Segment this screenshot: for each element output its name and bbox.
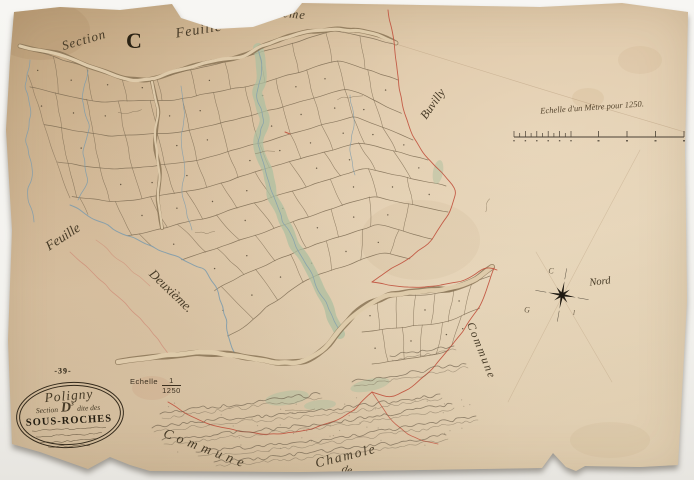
map-sheet: Section C Feuille Deuxième Buvilly Feuil… xyxy=(0,0,694,480)
compass-mark-top: C xyxy=(548,267,553,276)
scale-bar xyxy=(513,131,685,142)
cartouche-section-exponent: 3 xyxy=(71,401,74,407)
compass-mark-left: G xyxy=(524,306,530,315)
west-edge-line xyxy=(28,75,70,198)
label-commune-de: de xyxy=(341,463,354,477)
scale-ratio-label: Echelle xyxy=(130,377,158,386)
label-deuxieme-top: Deuxième xyxy=(247,3,306,23)
scale-fraction-denominator: 1250 xyxy=(162,385,181,395)
sheet-number: 12 xyxy=(31,452,41,463)
scale-fraction-numerator: 1 xyxy=(169,377,174,385)
scale-fraction: 1 1250 xyxy=(162,377,181,394)
paper-shadow-wrap: Section C Feuille Deuxième Buvilly Feuil… xyxy=(0,0,694,480)
roads xyxy=(20,29,492,363)
label-section-letter: C xyxy=(126,28,142,54)
cartouche-dept-number: -39- xyxy=(54,367,71,376)
compass-north-label: Nord xyxy=(589,275,611,288)
compass-star xyxy=(535,268,588,321)
cartouche-section-letter: D3 xyxy=(61,402,75,414)
compass-mark-bottom: l xyxy=(573,309,575,317)
cartouche-section-post: dite des xyxy=(77,403,101,413)
scale-ratio: Echelle 1 1250 xyxy=(130,377,181,394)
cartouche-section-pre: Section xyxy=(36,405,59,415)
parcel-bands xyxy=(20,31,448,350)
scan-background: Section C Feuille Deuxième Buvilly Feuil… xyxy=(0,0,694,480)
